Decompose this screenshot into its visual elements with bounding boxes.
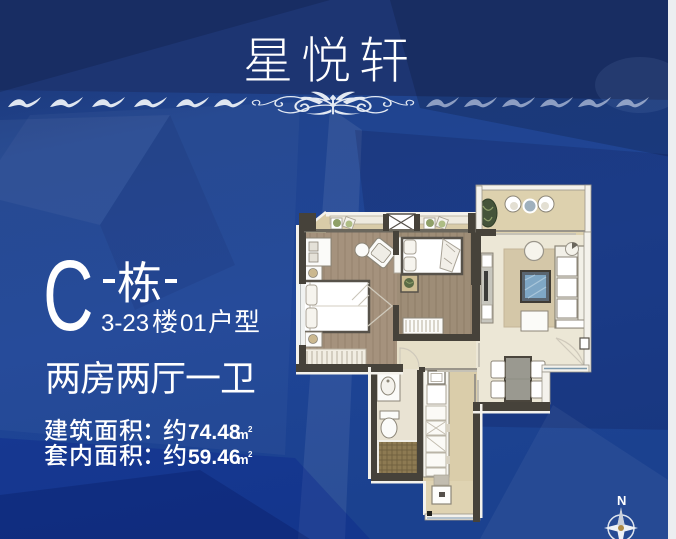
svg-text:N: N [617,493,626,508]
svg-text:01: 01 [180,310,207,337]
svg-text:59.46: 59.46 [188,446,241,469]
svg-text:C: C [43,241,94,352]
svg-text:3-23: 3-23 [101,310,149,337]
svg-text:74.48: 74.48 [188,421,241,444]
svg-text:2: 2 [248,450,253,459]
svg-text:m: m [237,427,249,442]
svg-text:2: 2 [248,425,253,434]
svg-text:m: m [237,452,249,467]
